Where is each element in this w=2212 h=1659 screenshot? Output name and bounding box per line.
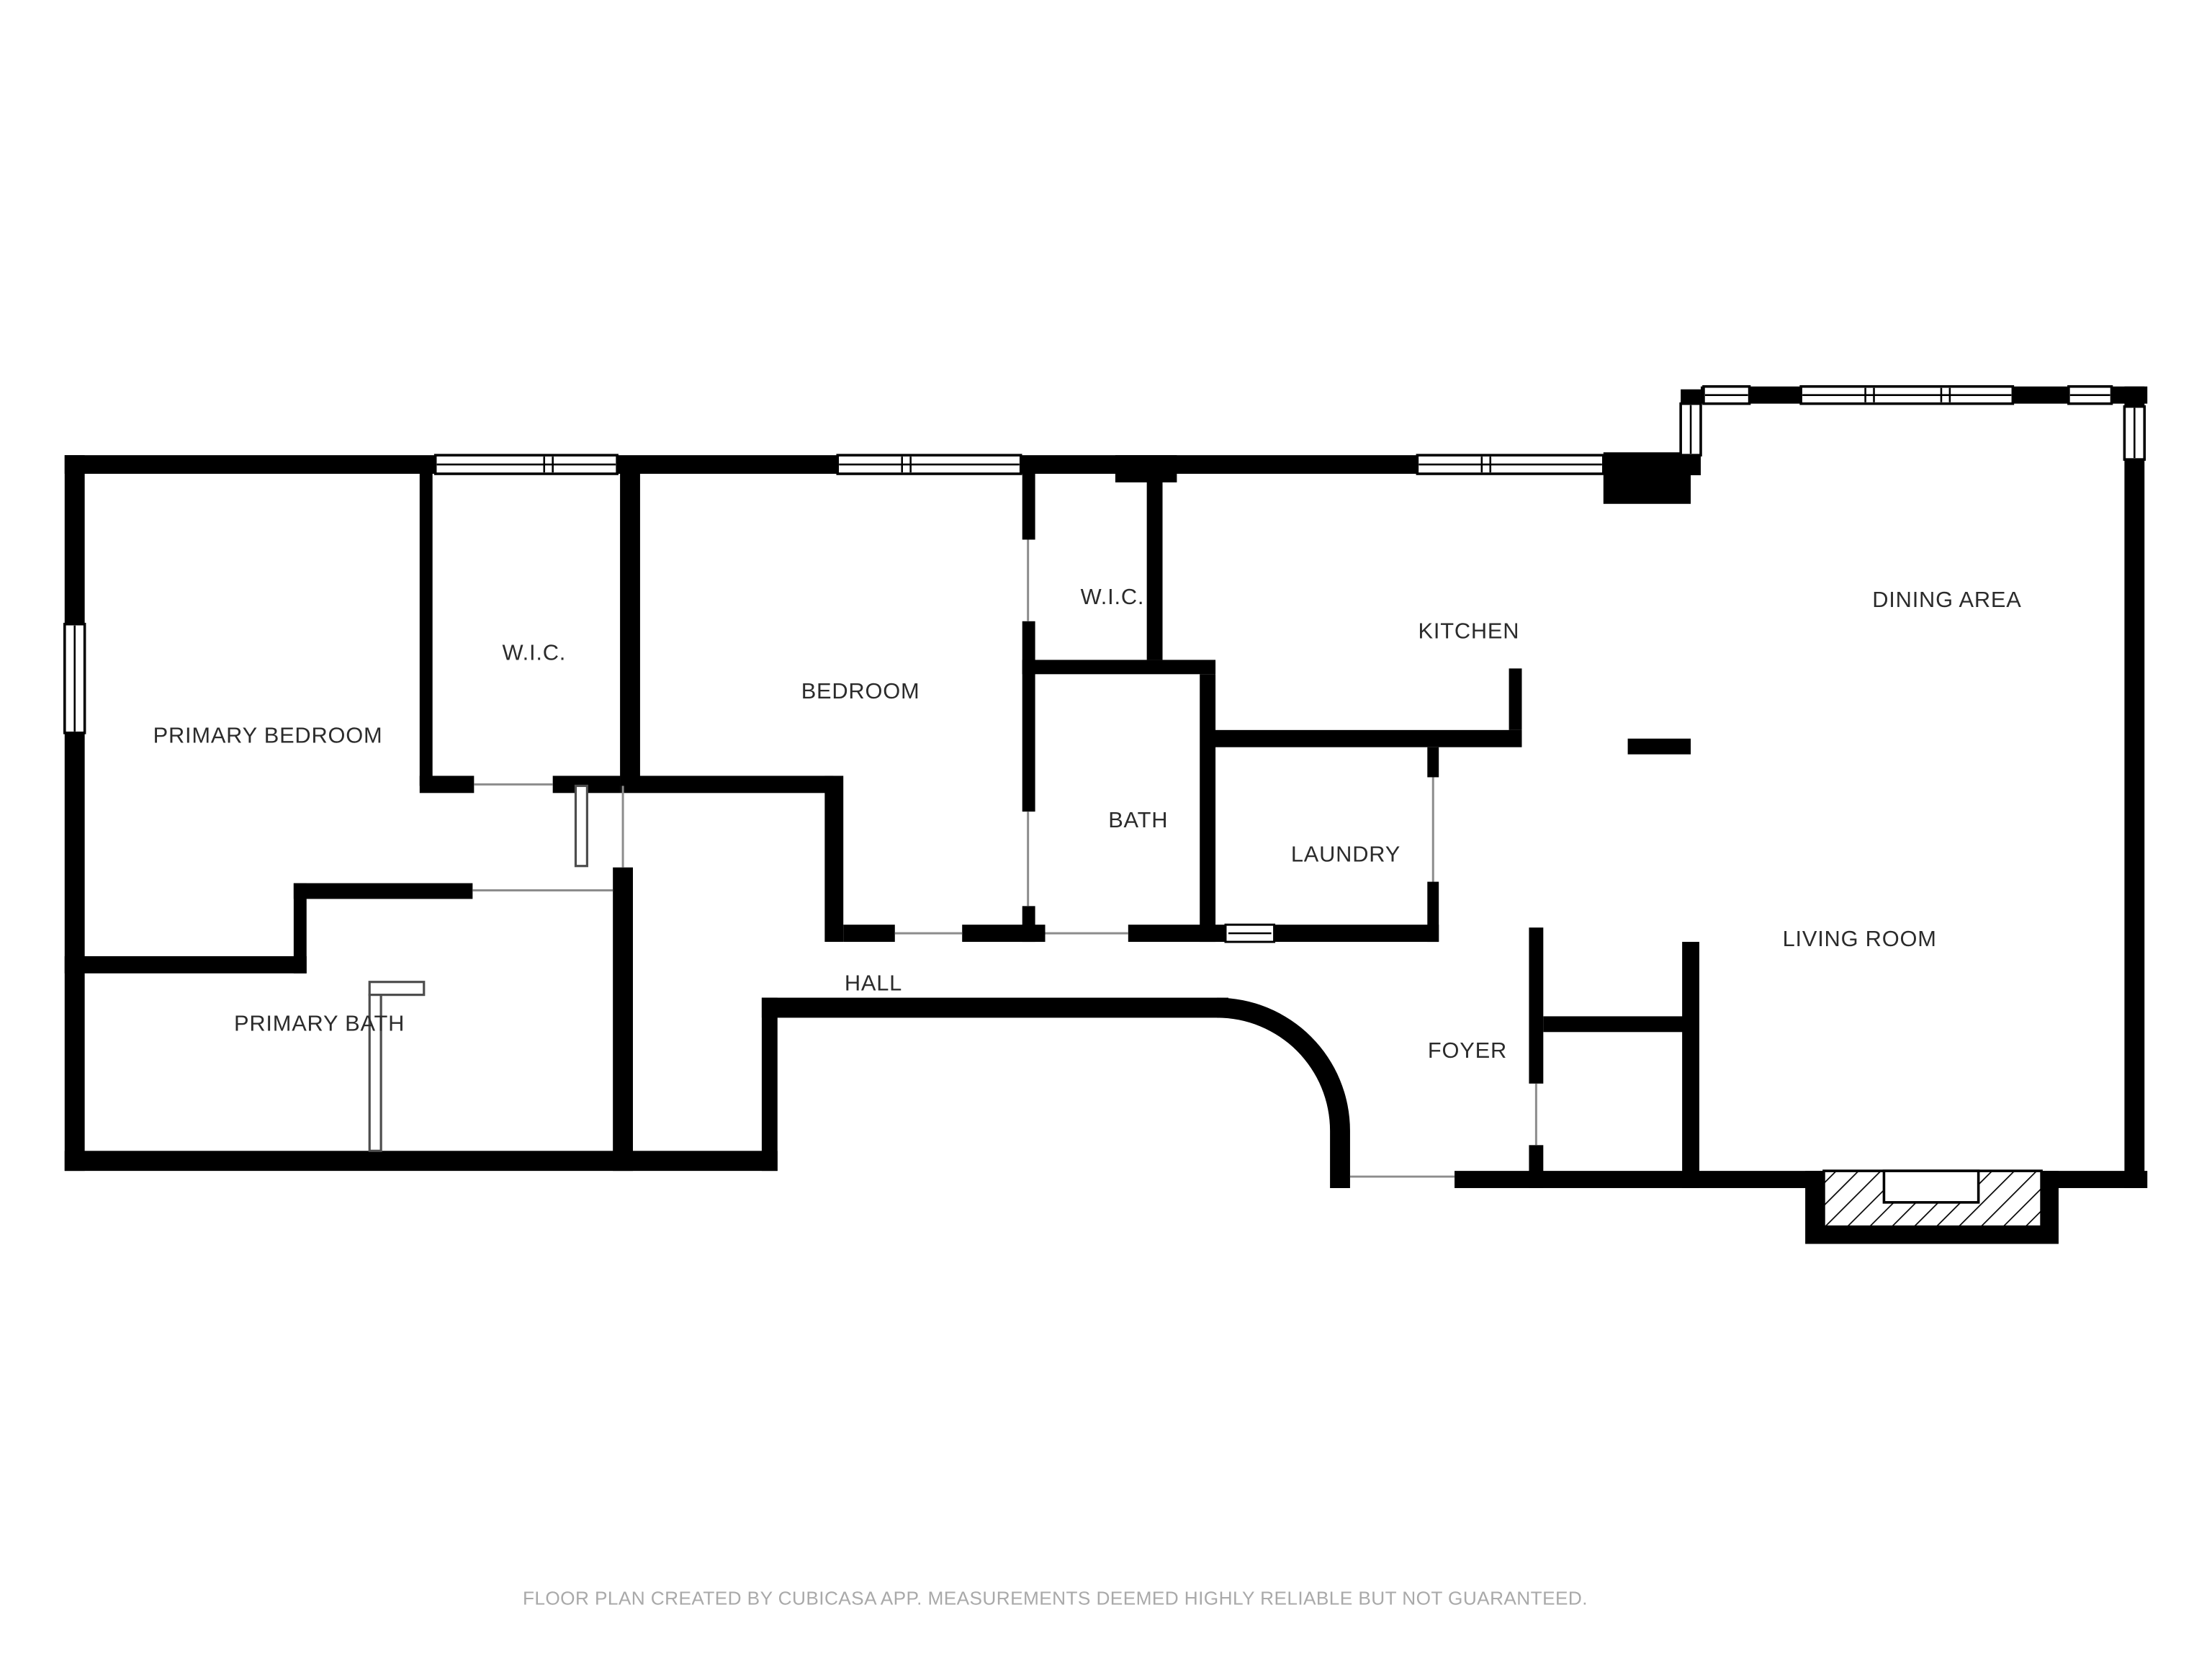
wall-segment bbox=[1200, 674, 1215, 942]
wall-segment bbox=[1022, 474, 1035, 539]
wall-segment bbox=[1021, 455, 1418, 474]
floor-plan-page: PRIMARY BEDROOM W.I.C. BEDROOM W.I.C. KI… bbox=[0, 0, 2212, 1659]
wall-segment bbox=[824, 775, 843, 942]
room-label-wic-primary: W.I.C. bbox=[503, 639, 567, 665]
wall-segment bbox=[1022, 906, 1035, 942]
wall-segment bbox=[762, 998, 1228, 1018]
wall-segment bbox=[2124, 387, 2144, 1188]
wall-segment bbox=[420, 474, 433, 786]
disclaimer-text: FLOOR PLAN CREATED BY CUBICASA APP. MEAS… bbox=[523, 1587, 1588, 1609]
wall-segment bbox=[1509, 668, 1522, 729]
room-label-living-room: LIVING ROOM bbox=[1783, 926, 1937, 951]
wall-segment bbox=[1543, 1016, 1698, 1032]
room-label-foyer: FOYER bbox=[1428, 1038, 1507, 1063]
wall-segment bbox=[1022, 660, 1215, 674]
wall-segment bbox=[1427, 882, 1439, 942]
door-leaf bbox=[575, 786, 587, 866]
room-label-kitchen: KITCHEN bbox=[1419, 619, 1520, 644]
door-leaf bbox=[369, 982, 424, 995]
wall-segment bbox=[1147, 478, 1163, 660]
fireplace-firebox bbox=[1884, 1171, 1978, 1202]
wall-segment bbox=[1022, 621, 1035, 811]
wall-segment bbox=[1628, 739, 1691, 755]
room-label-bath: BATH bbox=[1108, 807, 1168, 832]
curved-wall bbox=[1217, 998, 1350, 1188]
wall-segment bbox=[1128, 925, 1439, 942]
wall-segment bbox=[613, 868, 633, 1171]
wall-segment bbox=[65, 455, 85, 1171]
wall-segment bbox=[65, 455, 436, 474]
room-label-hall: HALL bbox=[845, 971, 902, 996]
room-label-laundry: LAUNDRY bbox=[1291, 842, 1401, 867]
wall-segment bbox=[420, 775, 475, 793]
wall-segment bbox=[294, 884, 472, 899]
wall-segment bbox=[1529, 927, 1543, 1084]
room-label-primary-bedroom: PRIMARY BEDROOM bbox=[153, 723, 383, 748]
wall-segment bbox=[620, 474, 640, 786]
wall-segment bbox=[762, 998, 778, 1172]
floor-plan-canvas: PRIMARY BEDROOM W.I.C. BEDROOM W.I.C. KI… bbox=[0, 0, 2212, 1659]
wall-segment bbox=[1213, 730, 1521, 747]
wall-segment bbox=[843, 925, 895, 942]
wall-column-block bbox=[1115, 455, 1177, 482]
room-label-wic-bedroom: W.I.C. bbox=[1081, 584, 1145, 609]
wall-segment bbox=[617, 455, 837, 474]
room-label-primary-bath: PRIMARY BATH bbox=[234, 1010, 405, 1035]
wall-segment bbox=[65, 1151, 778, 1171]
wall-segment bbox=[620, 775, 833, 793]
wall-segment bbox=[1529, 1145, 1543, 1188]
room-label-bedroom: BEDROOM bbox=[801, 678, 920, 703]
chimney-block bbox=[1604, 452, 1691, 504]
room-label-dining-area: DINING AREA bbox=[1872, 587, 2021, 612]
wall-segment bbox=[1427, 747, 1439, 778]
wall-segment bbox=[1682, 942, 1699, 1188]
wall-segment bbox=[65, 956, 307, 974]
